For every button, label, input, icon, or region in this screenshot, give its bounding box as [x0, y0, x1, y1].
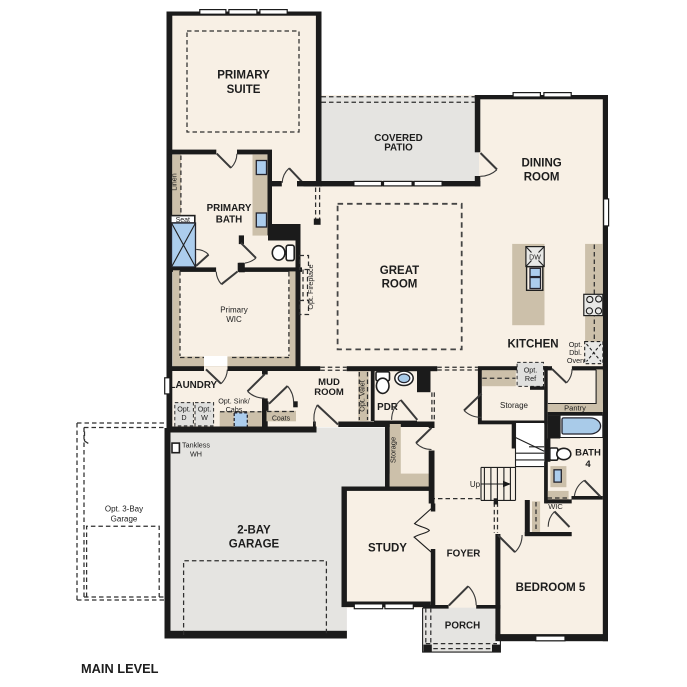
svg-text:BATH: BATH	[216, 214, 242, 225]
svg-text:GARAGE: GARAGE	[229, 539, 280, 551]
svg-text:2-BAY: 2-BAY	[237, 525, 271, 537]
svg-text:PRIMARY: PRIMARY	[217, 70, 270, 82]
svg-text:Up: Up	[470, 480, 481, 489]
svg-text:KITCHEN: KITCHEN	[507, 339, 558, 351]
svg-text:Storage: Storage	[389, 437, 398, 463]
svg-text:ROOM: ROOM	[314, 387, 344, 398]
svg-text:W: W	[201, 413, 208, 422]
svg-text:Opt. 3-Bay: Opt. 3-Bay	[105, 505, 143, 514]
svg-text:PATIO: PATIO	[384, 143, 413, 154]
svg-text:Tankless: Tankless	[182, 441, 210, 450]
svg-text:D: D	[181, 413, 186, 422]
svg-text:Coats: Coats	[272, 415, 291, 422]
svg-text:ROOM: ROOM	[382, 279, 418, 291]
svg-text:Oven: Oven	[567, 356, 584, 365]
svg-text:Garage: Garage	[111, 515, 138, 524]
svg-text:DINING: DINING	[521, 158, 561, 170]
svg-text:WH: WH	[190, 449, 202, 458]
svg-text:FOYER: FOYER	[447, 549, 481, 560]
svg-text:PRIMARY: PRIMARY	[207, 203, 252, 214]
svg-text:MAIN LEVEL: MAIN LEVEL	[81, 661, 159, 676]
svg-text:BEDROOM 5: BEDROOM 5	[516, 582, 586, 594]
svg-text:Storage: Storage	[500, 401, 529, 410]
svg-text:STUDY: STUDY	[368, 543, 407, 555]
svg-text:Opt. Sink/: Opt. Sink/	[218, 396, 250, 405]
svg-text:PORCH: PORCH	[445, 621, 480, 632]
svg-text:Linen: Linen	[170, 173, 179, 191]
svg-text:WIC: WIC	[548, 502, 563, 511]
svg-text:4: 4	[585, 459, 591, 470]
svg-text:Ref: Ref	[525, 374, 536, 383]
svg-text:SUITE: SUITE	[227, 84, 261, 96]
svg-text:Pantry: Pantry	[564, 404, 586, 413]
svg-text:Primary: Primary	[220, 306, 248, 315]
svg-text:WIC: WIC	[226, 315, 242, 324]
svg-text:Opt. Valet: Opt. Valet	[358, 380, 367, 411]
svg-text:Opt. Fireplace: Opt. Fireplace	[306, 264, 315, 309]
svg-text:LAUNDRY: LAUNDRY	[170, 380, 218, 391]
svg-text:ROOM: ROOM	[524, 171, 560, 183]
svg-text:BATH: BATH	[575, 448, 601, 459]
svg-text:Cabs: Cabs	[226, 405, 243, 414]
svg-text:DW: DW	[529, 255, 541, 262]
svg-text:GREAT: GREAT	[380, 265, 419, 277]
